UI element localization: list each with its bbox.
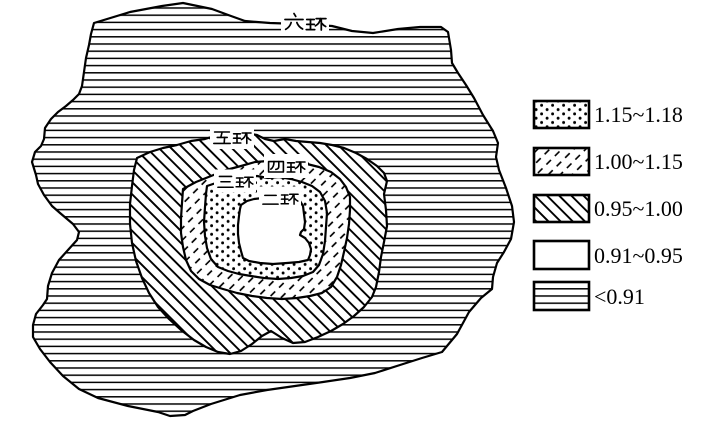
ring-label-ring-4: [264, 154, 308, 178]
legend-swatch-backslash: [534, 195, 589, 222]
legend-swatch-slash-dash: [534, 148, 589, 175]
legend-label: 0.91~0.95: [594, 243, 683, 268]
legend-item: <0.91: [534, 282, 645, 310]
ring-label-ring-3: [214, 170, 256, 193]
legend-label: <0.91: [594, 284, 645, 309]
legend-label: 0.95~1.00: [594, 196, 683, 221]
legend-label: 1.00~1.15: [594, 149, 683, 174]
legend-item: 0.91~0.95: [534, 241, 683, 269]
ring-label-ring-2: [259, 187, 301, 210]
legend-item: 1.15~1.18: [534, 101, 683, 128]
legend-item: 0.95~1.00: [534, 195, 683, 222]
legend-swatch-hlines: [534, 282, 589, 310]
ring-label-ring-6: [281, 10, 329, 36]
legend-swatch-plain: [534, 241, 589, 269]
ring-label-ring-5: [210, 125, 254, 149]
legend-swatch-dots: [534, 101, 589, 128]
ring-road-map-figure: 1.15~1.18 1.00~1.15 0.95~1.00 0.91~0.95 …: [0, 0, 708, 425]
legend: 1.15~1.18 1.00~1.15 0.95~1.00 0.91~0.95 …: [534, 101, 683, 310]
legend-label: 1.15~1.18: [594, 102, 683, 127]
map-svg: 1.15~1.18 1.00~1.15 0.95~1.00 0.91~0.95 …: [0, 0, 708, 425]
legend-item: 1.00~1.15: [534, 148, 683, 175]
